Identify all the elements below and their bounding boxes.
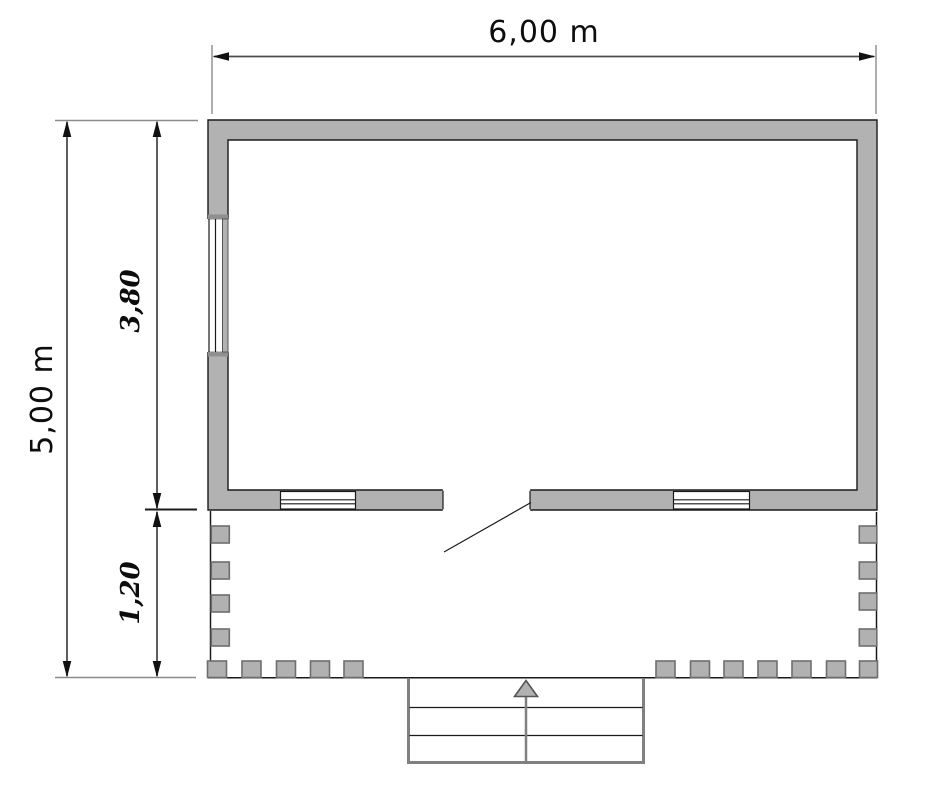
railing-post — [277, 661, 296, 678]
window-bottom-left — [281, 492, 356, 510]
railing-post — [211, 629, 229, 646]
railing-post — [311, 661, 330, 678]
railing-post — [211, 595, 229, 612]
dim-arrow-up-icon — [63, 121, 72, 138]
dim-arrow-down-icon — [63, 661, 72, 678]
railing-post — [859, 593, 877, 610]
railing-post — [208, 661, 227, 678]
railing-post — [860, 661, 878, 678]
window-bottom-right — [674, 492, 750, 510]
entry-steps — [409, 678, 644, 763]
window-left — [207, 215, 229, 357]
overall-height-label: 5,00 m — [26, 289, 60, 509]
door-opening — [443, 489, 531, 553]
dimension-top — [212, 45, 876, 114]
railing-post — [758, 661, 777, 678]
dimension-porch-depth — [153, 511, 162, 678]
railing-post — [827, 661, 846, 678]
railing-post — [656, 661, 675, 678]
exterior-walls — [208, 120, 877, 510]
porch-depth-label: 1,20 — [114, 533, 148, 653]
entry-arrow-icon — [515, 681, 538, 697]
floor-plan-canvas: 6,00 m 5,00 m 3,80 1,20 — [0, 0, 938, 808]
railing-post — [859, 526, 877, 543]
dim-arrow-right-icon — [859, 52, 876, 61]
dim-arrow-left-icon — [213, 52, 230, 61]
floor-plan-drawing — [0, 0, 938, 808]
dim-arrow-up-icon — [153, 121, 162, 138]
railing-post — [859, 562, 877, 579]
railing-post — [724, 661, 743, 678]
railing-post — [792, 661, 811, 678]
porch-railing — [208, 511, 878, 678]
railing-post — [242, 661, 261, 678]
railing-post — [691, 661, 710, 678]
railing-post — [211, 526, 229, 543]
railing-post — [211, 562, 229, 579]
room-depth-label: 3,80 — [114, 241, 148, 361]
dim-arrow-down-icon — [153, 661, 162, 678]
dimension-room-depth — [145, 121, 197, 510]
dim-arrow-up-icon — [153, 511, 162, 528]
overall-width-label: 6,00 m — [404, 16, 684, 50]
railing-post — [859, 629, 877, 646]
dim-arrow-down-icon — [153, 493, 162, 510]
railing-post — [344, 661, 363, 678]
